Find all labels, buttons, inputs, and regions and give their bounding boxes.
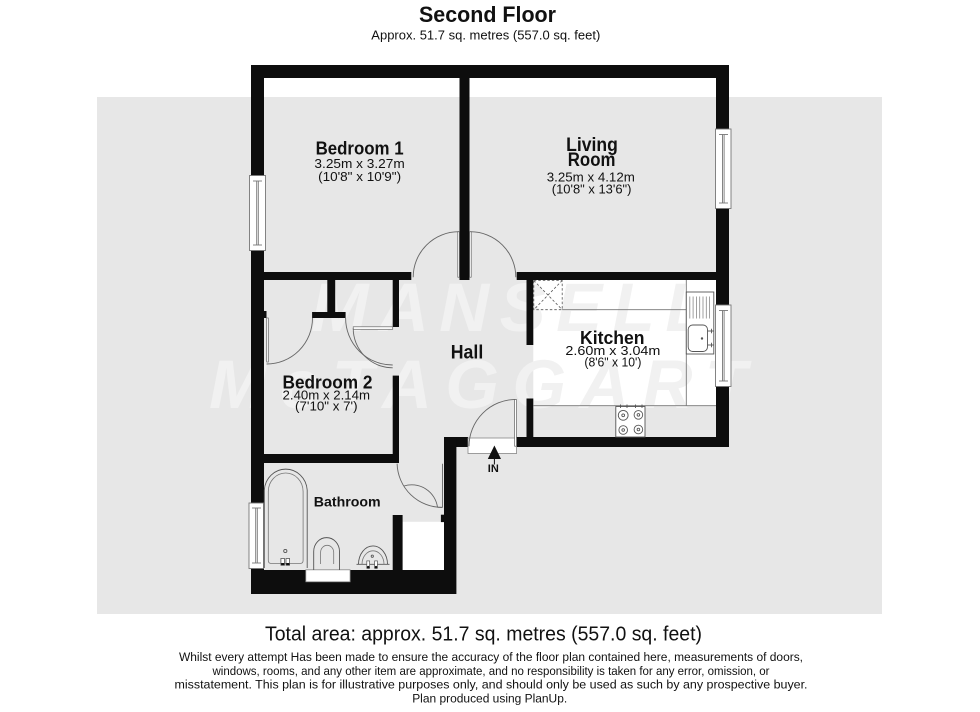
svg-text:MANSELL: MANSELL	[311, 269, 718, 346]
svg-text:Total area: approx. 51.7 sq. m: Total area: approx. 51.7 sq. metres (557…	[265, 624, 702, 646]
svg-text:Whilst every attempt Has been: Whilst every attempt Has been made to en…	[179, 650, 803, 664]
svg-text:Approx. 51.7 sq. metres (557.0: Approx. 51.7 sq. metres (557.0 sq. feet)	[371, 27, 600, 42]
svg-text:Bathroom: Bathroom	[314, 493, 381, 509]
svg-text:Plan produced using PlanUp.: Plan produced using PlanUp.	[412, 691, 567, 705]
svg-text:windows, rooms, and any other: windows, rooms, and any other item are a…	[212, 664, 770, 678]
svg-text:IN: IN	[488, 463, 499, 475]
svg-text:Hall: Hall	[451, 343, 484, 364]
svg-text:misstatement. This plan is for: misstatement. This plan is for illustrat…	[175, 678, 808, 692]
svg-text:(7'10" x 7'): (7'10" x 7')	[295, 399, 358, 414]
svg-text:(8'6" x 10'): (8'6" x 10')	[584, 355, 641, 370]
svg-text:(10'8" x 10'9"): (10'8" x 10'9")	[318, 169, 401, 184]
svg-text:Room: Room	[568, 150, 616, 171]
svg-text:Second Floor: Second Floor	[419, 2, 556, 27]
svg-text:(10'8" x 13'6"): (10'8" x 13'6")	[552, 182, 632, 197]
